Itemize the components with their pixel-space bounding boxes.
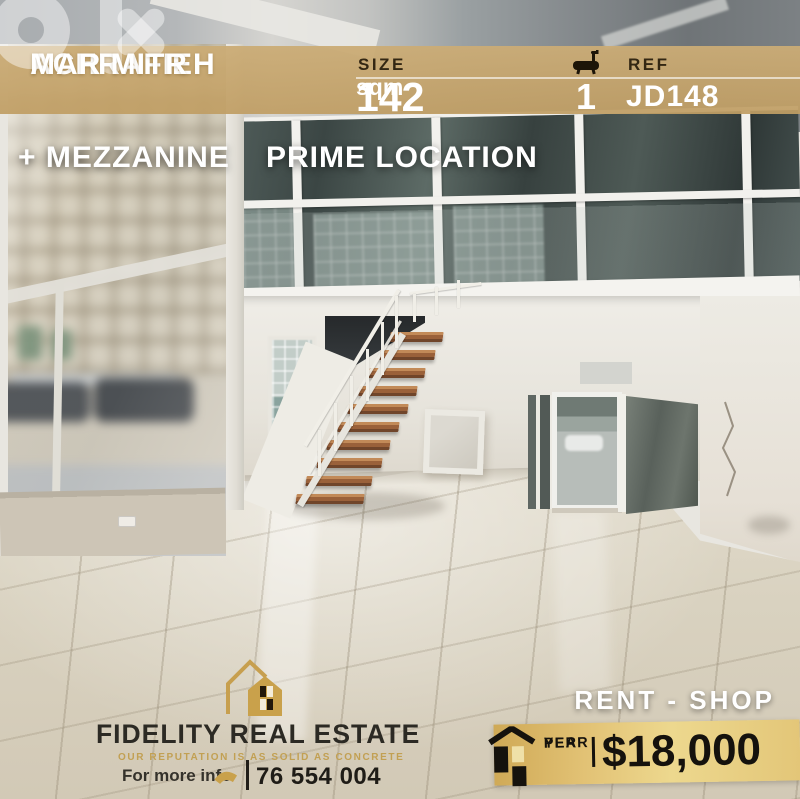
- mezzanine-windows: [216, 106, 800, 293]
- brand-house-icon: [222, 650, 282, 716]
- contact-divider: [246, 760, 249, 790]
- glass-partition: [528, 395, 554, 509]
- price-divider: [592, 737, 596, 767]
- price-value: $18,000: [602, 725, 762, 778]
- open-door: [626, 396, 698, 514]
- back-door: [552, 392, 622, 510]
- wall-wire: [715, 400, 743, 500]
- listing-type: RENT - SHOP: [574, 685, 775, 716]
- olx-watermark-logo: [0, 0, 188, 136]
- feature-prime-location: PRIME LOCATION: [266, 141, 538, 175]
- leaning-frame: [423, 409, 485, 475]
- price-banner: PER YEAR $18,000: [493, 719, 800, 785]
- phone-icon: [210, 762, 242, 790]
- price-house-icon: [488, 726, 537, 787]
- phone-number: 76 554 004: [256, 763, 381, 791]
- brand-tagline: OUR REPUTATION IS AS SOLID AS CONCRETE: [118, 752, 404, 763]
- power-outlet: [118, 516, 136, 527]
- listing-flyer: ACHRAFIEH MAR MITR SIZE 142sqm 1 REF JD1…: [0, 0, 800, 799]
- feature-mezzanine: + MEZZANINE: [18, 141, 230, 175]
- brand-name: FIDELITY REAL ESTATE: [96, 719, 420, 750]
